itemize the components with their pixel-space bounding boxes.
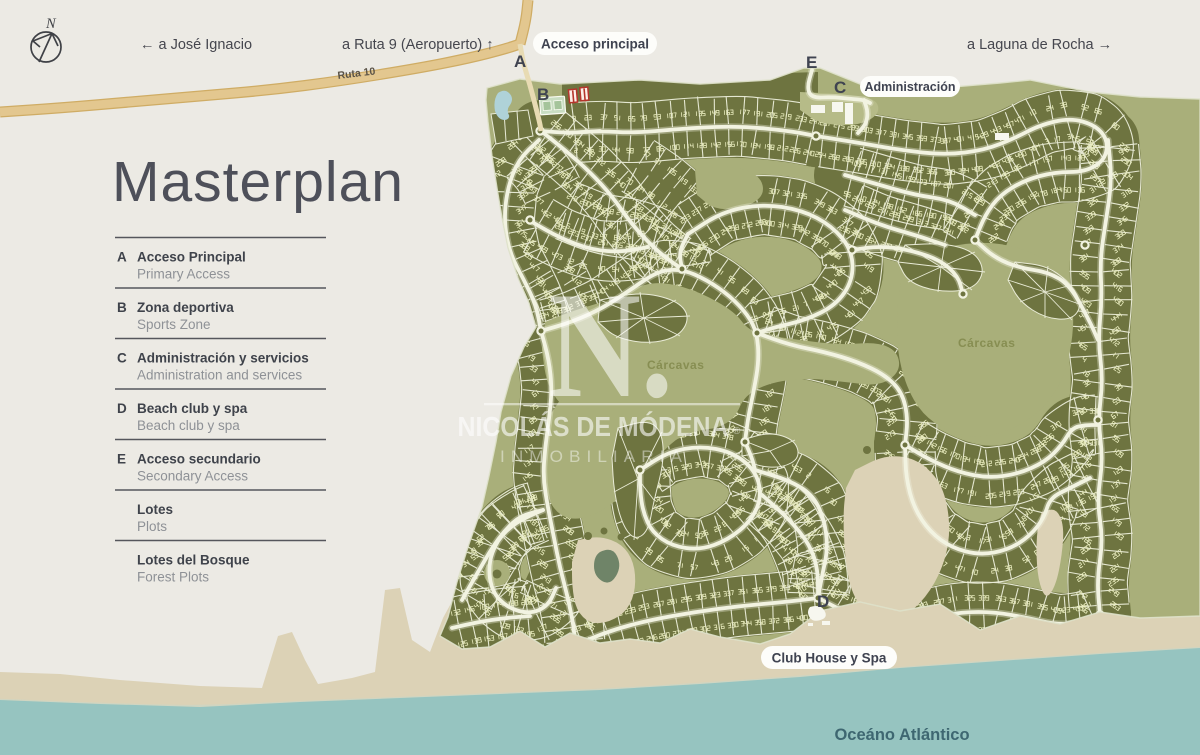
svg-text:a Laguna de Rocha →: a Laguna de Rocha → bbox=[967, 37, 1112, 53]
svg-text:Acceso principal: Acceso principal bbox=[541, 36, 649, 51]
svg-text:Administration and services: Administration and services bbox=[137, 368, 302, 383]
svg-text:E: E bbox=[117, 452, 126, 467]
svg-text:C: C bbox=[834, 78, 846, 97]
svg-text:Club House y Spa: Club House y Spa bbox=[772, 650, 887, 665]
svg-text:Plots: Plots bbox=[137, 519, 167, 534]
svg-text:®: ® bbox=[733, 426, 741, 437]
svg-text:Masterplan: Masterplan bbox=[112, 150, 404, 214]
svg-text:N: N bbox=[45, 16, 57, 32]
svg-text:A: A bbox=[514, 52, 526, 71]
svg-text:B: B bbox=[537, 85, 549, 104]
svg-text:Administración: Administración bbox=[865, 80, 956, 94]
svg-text:D: D bbox=[117, 401, 127, 416]
svg-text:Sports Zone: Sports Zone bbox=[137, 317, 211, 332]
svg-text:Forest Plots: Forest Plots bbox=[137, 570, 209, 585]
svg-text:INMOBILIARIA: INMOBILIARIA bbox=[500, 447, 688, 466]
svg-text:Lotes del Bosque: Lotes del Bosque bbox=[137, 553, 250, 568]
svg-text:C: C bbox=[117, 351, 127, 366]
svg-text:Beach club y spa: Beach club y spa bbox=[137, 418, 240, 433]
svg-text:Acceso Principal: Acceso Principal bbox=[137, 250, 246, 265]
svg-text:Oceáno Atlántico: Oceáno Atlántico bbox=[834, 726, 969, 744]
svg-text:NICOLÁS DE MÓDENA: NICOLÁS DE MÓDENA bbox=[458, 411, 729, 442]
svg-text:Primary Access: Primary Access bbox=[137, 267, 230, 282]
svg-text:Acceso secundario: Acceso secundario bbox=[137, 452, 261, 467]
svg-text:Lotes: Lotes bbox=[137, 502, 173, 517]
svg-text:B: B bbox=[117, 300, 127, 315]
svg-text:Zona deportiva: Zona deportiva bbox=[137, 300, 234, 315]
svg-text:E: E bbox=[806, 53, 817, 72]
svg-text:Cárcavas: Cárcavas bbox=[958, 336, 1015, 350]
svg-text:Administración y servicios: Administración y servicios bbox=[137, 351, 309, 366]
svg-text:← a José Ignacio: ← a José Ignacio bbox=[140, 37, 252, 53]
svg-text:Beach club y spa: Beach club y spa bbox=[137, 401, 248, 416]
svg-text:A: A bbox=[117, 250, 127, 265]
svg-text:Secondary Access: Secondary Access bbox=[137, 469, 248, 484]
svg-text:D: D bbox=[817, 592, 829, 611]
svg-text:a Ruta 9 (Aeropuerto) ↑: a Ruta 9 (Aeropuerto) ↑ bbox=[342, 37, 494, 53]
